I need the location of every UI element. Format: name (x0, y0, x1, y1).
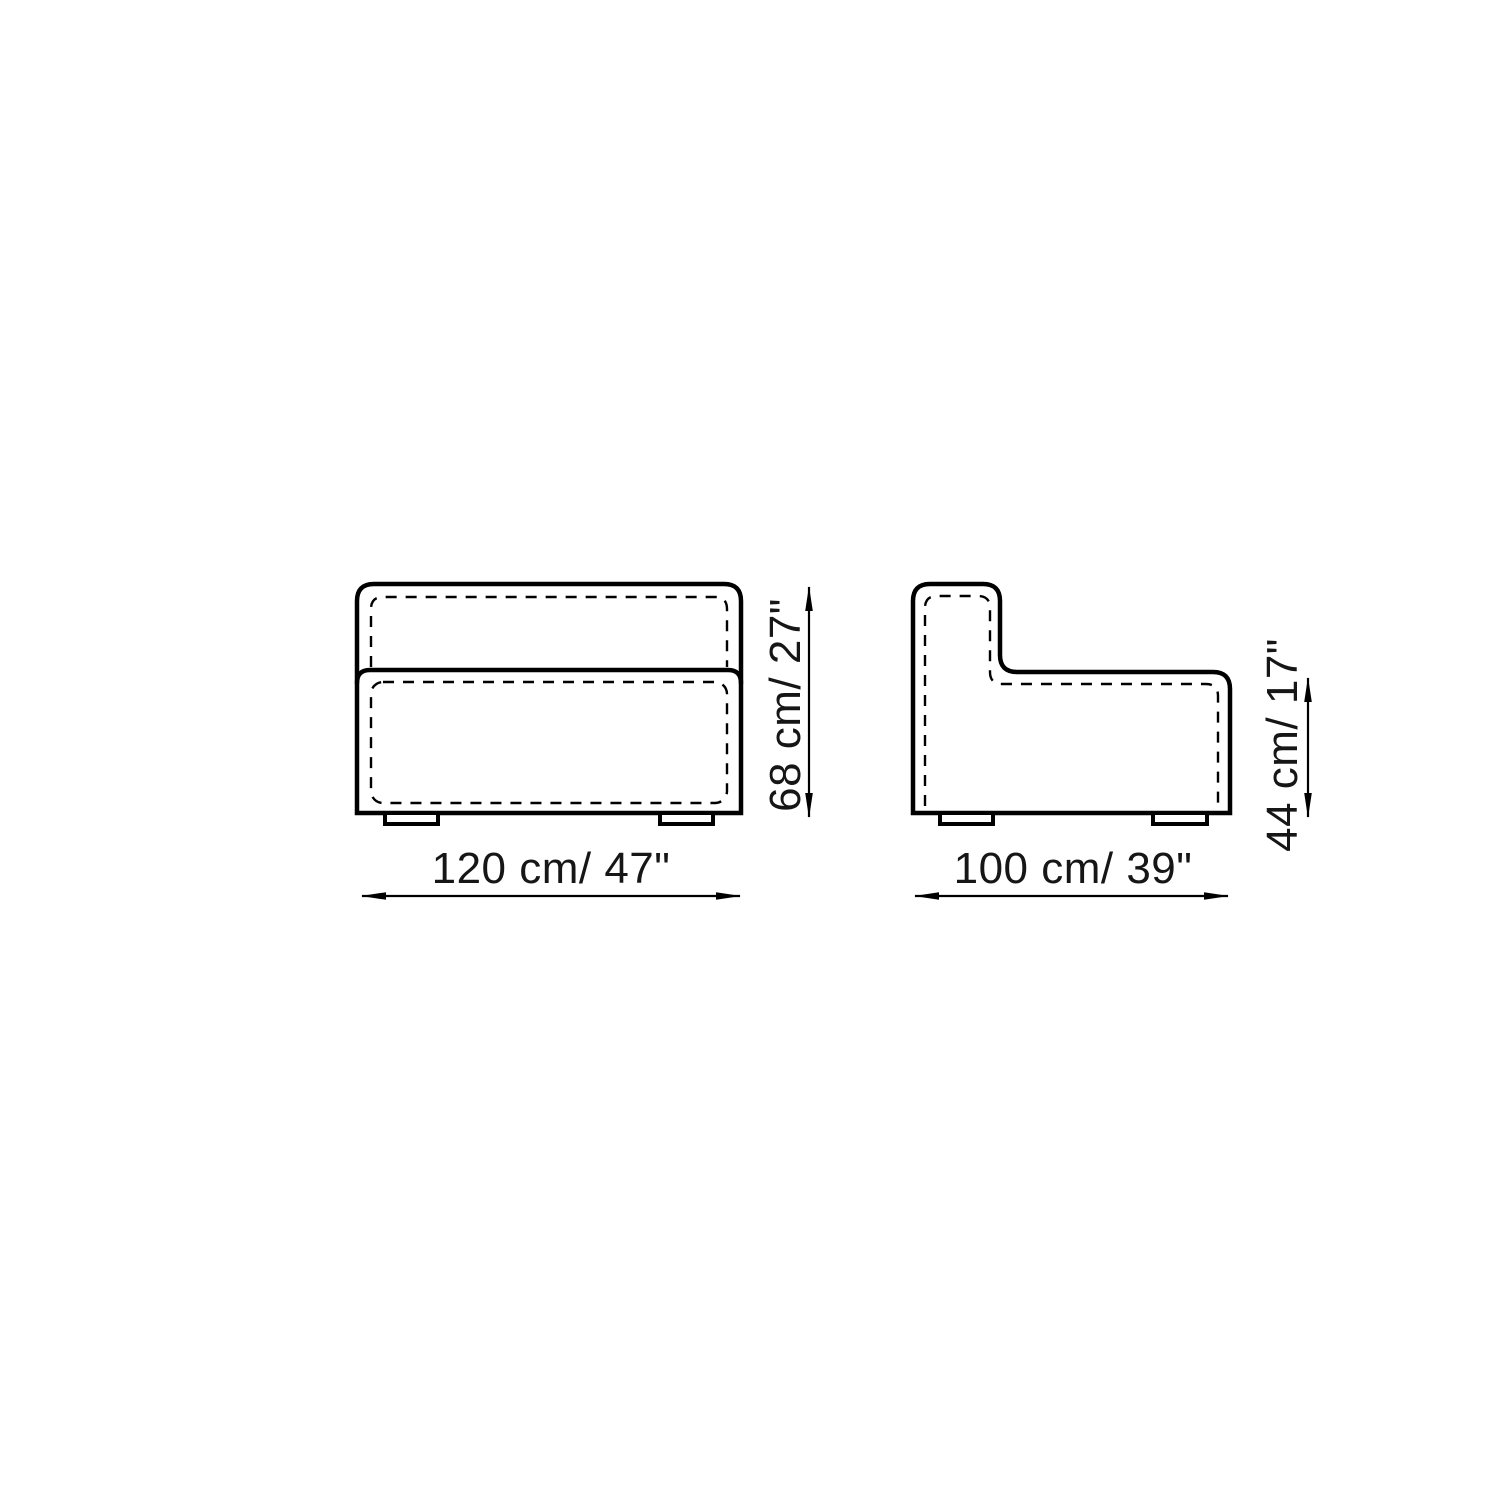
side-depth-label: 100 cm/ 39" (954, 844, 1193, 893)
side-right-foot (1153, 813, 1207, 824)
front-body-outline (357, 584, 741, 813)
front-height-dimension: 68 cm/ 27" (761, 587, 810, 817)
front-right-foot (660, 813, 713, 824)
side-view (913, 584, 1230, 824)
side-seat-height-label: 44 cm/ 17" (1258, 638, 1307, 852)
front-left-foot (385, 813, 438, 824)
front-height-label: 68 cm/ 27" (761, 598, 810, 812)
front-width-label: 120 cm/ 47" (432, 844, 671, 893)
side-body-outline (913, 584, 1230, 813)
front-width-dimension: 120 cm/ 47" (362, 844, 740, 896)
side-seat-height-dimension: 44 cm/ 17" (1258, 638, 1308, 852)
front-view (357, 584, 741, 824)
furniture-dimension-diagram: 120 cm/ 47" 68 cm/ 27" 100 cm/ 39" 44 cm… (0, 0, 1500, 1500)
side-depth-dimension: 100 cm/ 39" (915, 844, 1228, 896)
side-left-foot (940, 813, 993, 824)
